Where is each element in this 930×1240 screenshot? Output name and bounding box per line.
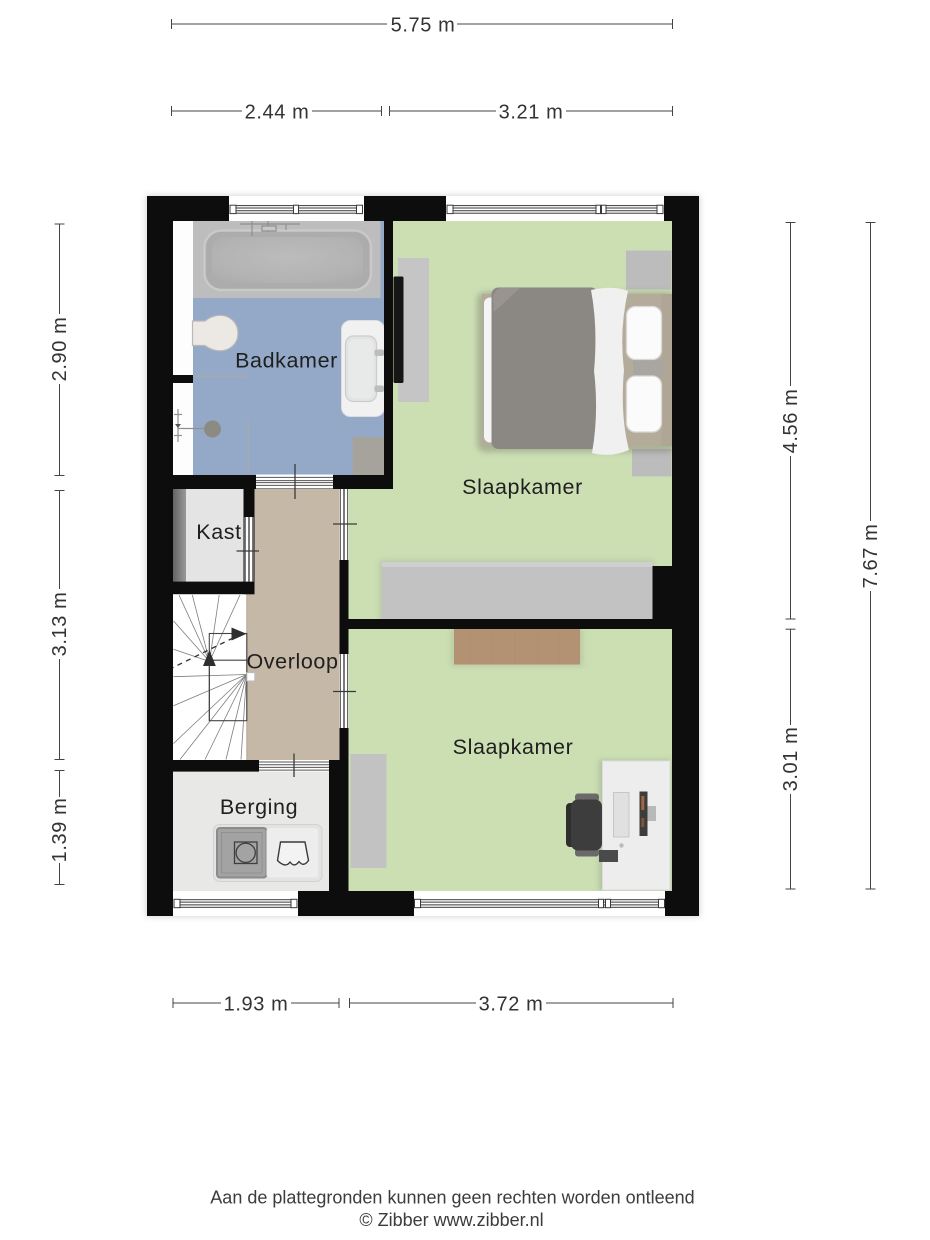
svg-text:Badkamer: Badkamer [235, 349, 338, 373]
svg-text:© Zibber www.zibber.nl: © Zibber www.zibber.nl [359, 1210, 543, 1230]
svg-text:Slaapkamer: Slaapkamer [462, 475, 583, 499]
svg-text:7.67 m: 7.67 m [860, 524, 882, 589]
svg-text:2.90 m: 2.90 m [49, 317, 71, 382]
svg-text:Aan de plattegronden kunnen ge: Aan de plattegronden kunnen geen rechten… [210, 1188, 694, 1208]
svg-text:5.75 m: 5.75 m [391, 15, 456, 37]
svg-text:Berging: Berging [220, 795, 298, 819]
svg-text:3.01 m: 3.01 m [780, 727, 802, 792]
svg-text:3.21 m: 3.21 m [499, 102, 564, 124]
svg-text:4.56 m: 4.56 m [780, 389, 802, 454]
svg-text:3.13 m: 3.13 m [49, 592, 71, 657]
svg-text:Kast: Kast [196, 520, 241, 544]
svg-text:1.39 m: 1.39 m [49, 798, 71, 863]
svg-text:2.44 m: 2.44 m [245, 102, 310, 124]
svg-text:1.93 m: 1.93 m [224, 994, 289, 1016]
svg-text:Slaapkamer: Slaapkamer [453, 735, 574, 759]
svg-text:Overloop: Overloop [246, 650, 338, 674]
svg-text:3.72 m: 3.72 m [479, 994, 544, 1016]
